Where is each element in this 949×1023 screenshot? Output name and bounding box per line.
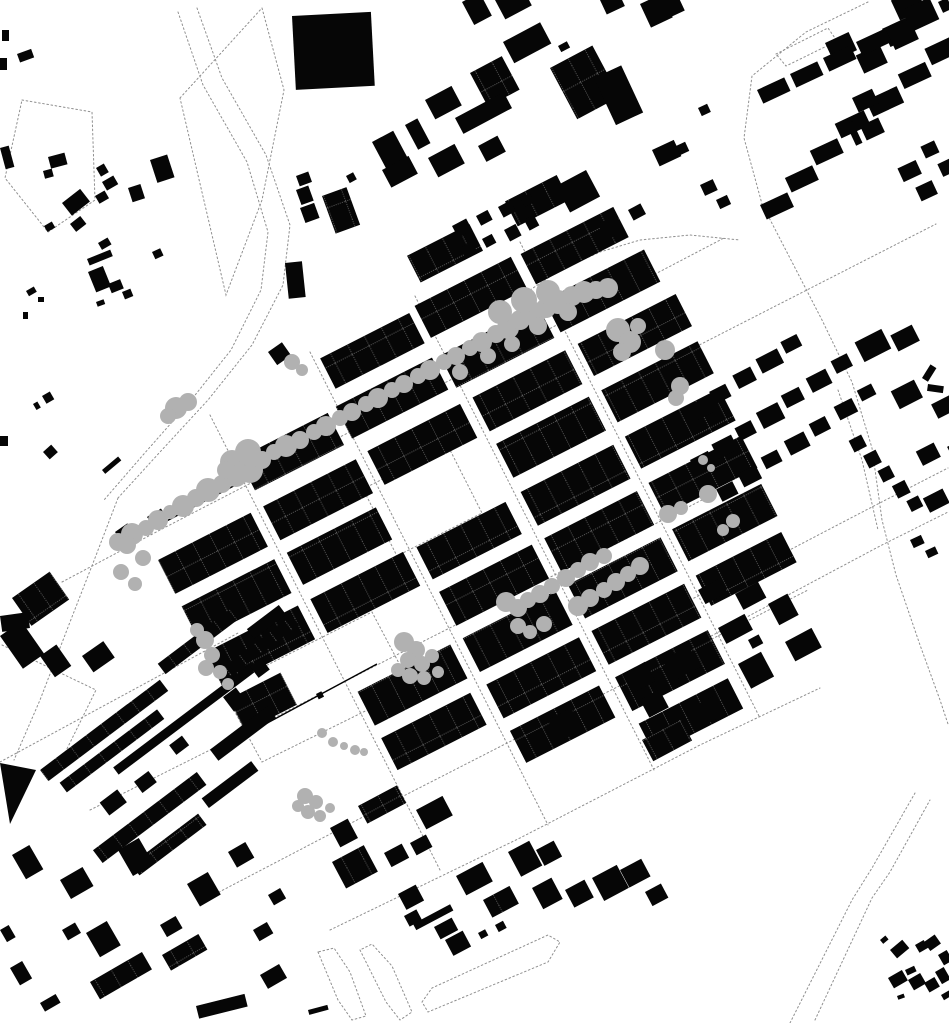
- tree-canopy: [529, 317, 547, 335]
- tree-canopy: [350, 745, 360, 755]
- building-footprint: [292, 12, 375, 90]
- building-footprint: [38, 297, 44, 302]
- tree-canopy: [674, 501, 688, 515]
- tree-canopy: [698, 455, 708, 465]
- tree-canopy: [598, 278, 618, 298]
- tree-canopy: [717, 524, 729, 536]
- tree-canopy: [707, 464, 715, 472]
- tree-canopy: [425, 649, 439, 663]
- tree-canopy: [402, 668, 418, 684]
- tree-canopy: [536, 280, 560, 304]
- tree-canopy: [726, 514, 740, 528]
- tree-canopy: [113, 564, 129, 580]
- tree-canopy: [190, 623, 204, 637]
- building-footprint: [0, 436, 8, 446]
- tree-canopy: [488, 300, 512, 324]
- tree-canopy: [699, 485, 717, 503]
- tree-canopy: [480, 348, 496, 364]
- tree-canopy: [360, 748, 368, 756]
- tree-canopy: [222, 678, 234, 690]
- tree-canopy: [296, 364, 308, 376]
- tree-canopy: [128, 577, 142, 591]
- tree-canopy: [630, 318, 646, 334]
- tree-canopy: [613, 343, 631, 361]
- tree-canopy: [340, 742, 348, 750]
- tree-canopy: [417, 671, 431, 685]
- tree-canopy: [668, 390, 684, 406]
- tree-canopy: [504, 336, 520, 352]
- tree-canopy: [179, 393, 197, 411]
- tree-canopy: [160, 408, 176, 424]
- building-footprint: [23, 312, 28, 319]
- tree-canopy: [198, 660, 214, 676]
- tree-canopy: [328, 737, 338, 747]
- tree-canopy: [523, 625, 537, 639]
- tree-canopy: [432, 666, 444, 678]
- city-map-canvas: [0, 0, 949, 1023]
- tree-canopy: [511, 287, 537, 313]
- tree-canopy: [135, 550, 151, 566]
- tree-canopy: [325, 803, 335, 813]
- tree-canopy: [559, 303, 577, 321]
- building-footprint: [2, 30, 9, 41]
- tree-canopy: [235, 439, 261, 465]
- figure-ground-map: [0, 0, 949, 1023]
- tree-canopy: [631, 557, 649, 575]
- building-footprint: [0, 58, 7, 70]
- tree-canopy: [213, 665, 227, 679]
- tree-canopy: [452, 364, 468, 380]
- tree-canopy: [317, 728, 327, 738]
- tree-canopy: [292, 800, 304, 812]
- tree-canopy: [118, 536, 136, 554]
- tree-canopy: [217, 461, 235, 479]
- tree-canopy: [655, 340, 675, 360]
- tree-canopy: [536, 616, 552, 632]
- tree-canopy: [314, 810, 326, 822]
- tree-canopy: [596, 548, 612, 564]
